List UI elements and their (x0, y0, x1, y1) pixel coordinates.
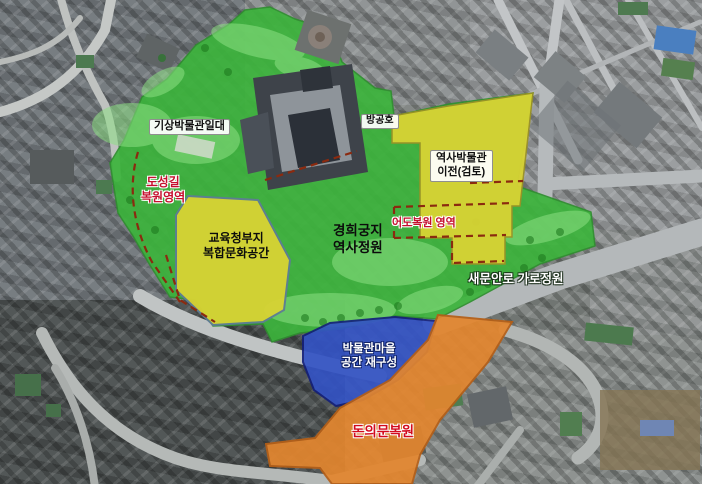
label-museum-village-line1: 박물관마을 (341, 342, 397, 356)
label-museum-village: 박물관마을 공간 재구성 (341, 342, 397, 371)
label-museum-village-line2: 공간 재구성 (341, 356, 397, 370)
label-donuimun-restoration: 돈의문복원 (352, 424, 414, 441)
label-education-office: 교육청부지 복합문화공간 (203, 231, 269, 261)
label-history-museum-line2: 이전(검토) (436, 166, 487, 180)
label-gyeonghuigung-line1: 경희궁지 (333, 223, 383, 240)
label-weather-museum-area: 기상박물관일대 (149, 119, 230, 135)
label-doseong-trail-line1: 도성길 (141, 175, 185, 190)
label-education-office-line1: 교육청부지 (203, 231, 269, 246)
label-saemunan-garden: 새문안로 가로정원 (468, 272, 563, 288)
label-history-museum: 역사박물관 이전(검토) (430, 150, 493, 182)
label-doseong-trail: 도성길 복원영역 (141, 175, 185, 205)
label-gyeonghuigung-line2: 역사정원 (333, 240, 383, 257)
label-eodo-restoration: 어도복원 영역 (392, 217, 456, 231)
label-air-raid-shelter: 방공호 (361, 114, 399, 129)
aerial-plan-map: 기상박물관일대 방공호 역사박물관 이전(검토) 도성길 복원영역 교육청부지 … (0, 0, 702, 484)
label-doseong-trail-line2: 복원영역 (141, 190, 185, 205)
palace-complex (240, 64, 368, 190)
label-gyeonghuigung-garden: 경희궁지 역사정원 (333, 223, 383, 257)
label-education-office-line2: 복합문화공간 (203, 246, 269, 261)
label-history-museum-line1: 역사박물관 (436, 152, 487, 166)
